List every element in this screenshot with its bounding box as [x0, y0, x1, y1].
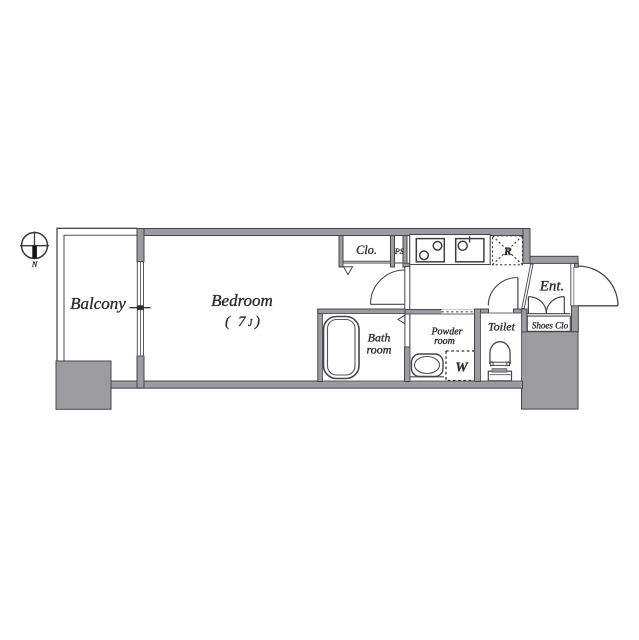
svg-text:W: W	[455, 361, 469, 376]
svg-text:room: room	[367, 343, 392, 357]
svg-text:Toilet: Toilet	[488, 319, 516, 333]
svg-text:Ent.: Ent.	[539, 279, 565, 295]
svg-text:Balcony: Balcony	[70, 294, 126, 313]
svg-text:Clo.: Clo.	[356, 243, 377, 257]
svg-text:Bedroom: Bedroom	[211, 291, 273, 310]
svg-text:PS: PS	[394, 247, 404, 256]
svg-text:room: room	[434, 336, 455, 347]
svg-text:N: N	[31, 260, 38, 269]
svg-text:Shoes Clo: Shoes Clo	[532, 321, 569, 331]
svg-text:R: R	[503, 246, 512, 258]
